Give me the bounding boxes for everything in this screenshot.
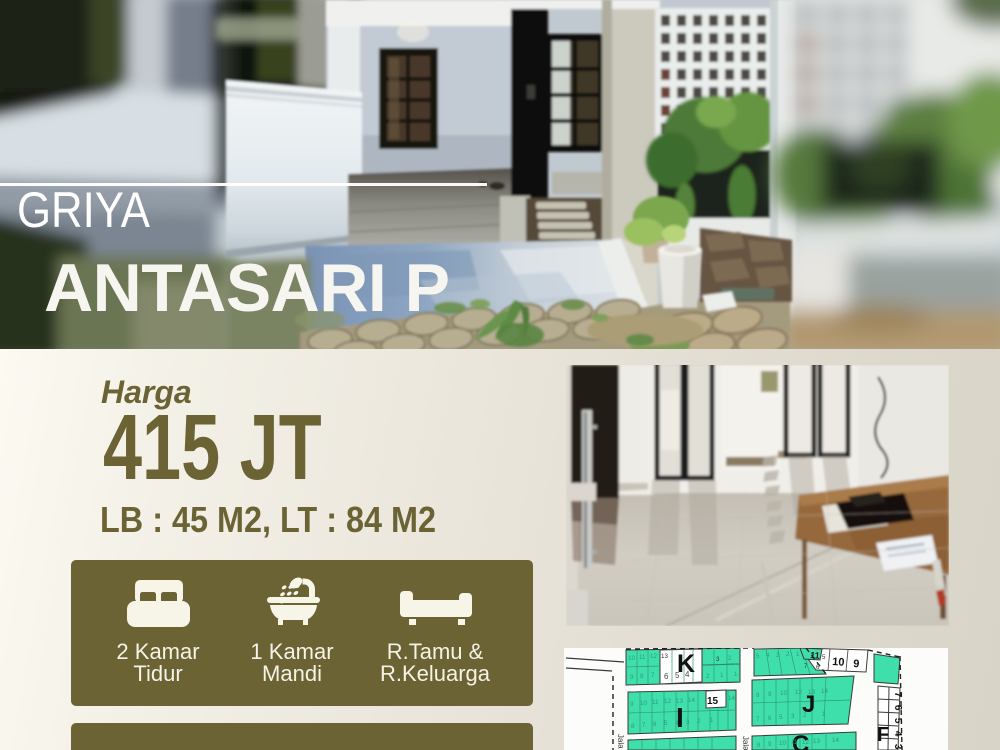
svg-text:14: 14 [728, 695, 735, 702]
svg-text:3: 3 [716, 656, 720, 663]
svg-text:15: 15 [707, 696, 719, 707]
svg-text:6: 6 [816, 664, 820, 671]
svg-text:6: 6 [768, 715, 772, 722]
svg-text:3: 3 [791, 713, 795, 720]
svg-text:Jala: Jala [616, 734, 626, 750]
svg-text:1: 1 [796, 651, 800, 658]
svg-text:7: 7 [804, 663, 808, 670]
svg-text:12: 12 [664, 698, 671, 705]
svg-text:10: 10 [779, 740, 786, 747]
svg-text:11: 11 [791, 739, 798, 746]
svg-text:9: 9 [853, 658, 860, 670]
svg-text:4: 4 [766, 652, 770, 659]
svg-text:12: 12 [795, 689, 802, 696]
svg-text:7: 7 [642, 722, 646, 729]
svg-text:3: 3 [686, 719, 690, 726]
svg-text:2: 2 [728, 655, 732, 662]
svg-text:1: 1 [720, 672, 724, 679]
svg-text:13: 13 [661, 653, 668, 660]
svg-text:7: 7 [651, 672, 655, 679]
svg-text:9: 9 [630, 701, 634, 708]
svg-text:5: 5 [822, 654, 826, 661]
svg-text:6: 6 [664, 672, 669, 681]
svg-text:5: 5 [675, 671, 680, 680]
svg-text:5: 5 [664, 720, 668, 727]
svg-text:1: 1 [734, 671, 738, 678]
svg-text:14: 14 [832, 737, 839, 744]
svg-text:4: 4 [892, 731, 903, 738]
svg-text:9: 9 [768, 691, 772, 698]
svg-text:5: 5 [892, 718, 903, 725]
svg-text:6: 6 [892, 705, 903, 712]
svg-text:4: 4 [675, 720, 679, 727]
svg-text:12: 12 [650, 653, 657, 660]
svg-text:14: 14 [821, 688, 828, 695]
svg-text:5: 5 [756, 653, 760, 660]
svg-text:8: 8 [640, 673, 644, 680]
svg-text:1: 1 [822, 711, 826, 718]
svg-text:11: 11 [652, 699, 659, 706]
svg-text:9: 9 [630, 674, 634, 681]
svg-text:2: 2 [697, 718, 701, 725]
svg-text:13: 13 [808, 689, 815, 696]
svg-text:11: 11 [639, 654, 646, 661]
svg-text:9: 9 [768, 741, 772, 748]
svg-text:5: 5 [779, 714, 783, 721]
svg-text:10: 10 [640, 700, 647, 707]
svg-text:8: 8 [756, 692, 760, 699]
svg-text:2: 2 [706, 673, 710, 680]
svg-text:14: 14 [688, 697, 695, 704]
svg-text:13: 13 [813, 738, 820, 745]
svg-text:3: 3 [892, 744, 903, 750]
svg-text:8: 8 [757, 742, 761, 749]
svg-text:7: 7 [756, 716, 760, 723]
svg-text:12: 12 [802, 739, 809, 746]
svg-text:11: 11 [810, 650, 820, 661]
svg-text:2: 2 [786, 651, 790, 658]
svg-text:8: 8 [631, 723, 635, 730]
svg-text:F: F [877, 724, 889, 746]
svg-text:13: 13 [676, 698, 683, 705]
svg-text:1: 1 [710, 717, 714, 724]
svg-text:Jalan: Jalan [741, 736, 751, 750]
svg-text:3: 3 [776, 652, 780, 659]
svg-text:10: 10 [780, 690, 787, 697]
svg-text:2: 2 [803, 712, 807, 719]
svg-text:10: 10 [832, 656, 845, 669]
svg-text:6: 6 [653, 721, 657, 728]
svg-text:10: 10 [628, 655, 635, 662]
svg-text:I: I [676, 702, 684, 733]
svg-text:4: 4 [685, 670, 690, 679]
svg-text:7: 7 [892, 692, 903, 699]
